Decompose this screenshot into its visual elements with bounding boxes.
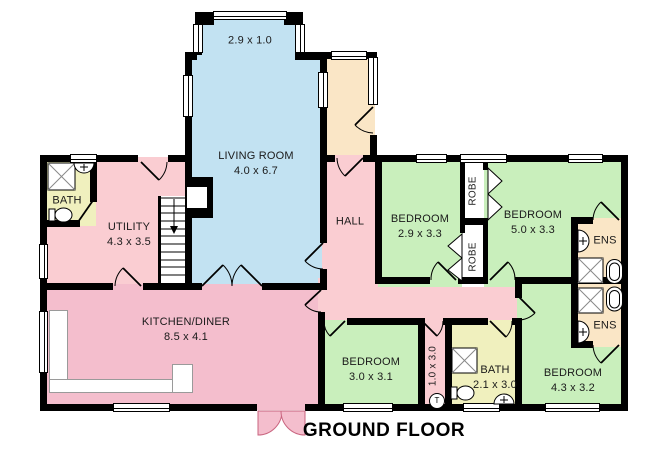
room-label-bedroom-3: BEDROOM3.0 x 3.1 <box>342 355 400 385</box>
fireplace <box>187 177 213 218</box>
tank-marker: T <box>429 393 445 409</box>
bay-window-dims: 2.9 x 1.0 <box>228 34 272 49</box>
shower-icon <box>48 163 603 373</box>
corridor-dims: 1.0 x 3.0 <box>426 346 441 386</box>
room-label-bath-1: BATH <box>52 194 81 209</box>
bathtub-icon <box>607 260 623 312</box>
french-doors <box>258 411 305 435</box>
floor-plan: 2.9 x 1.0 LIVING ROOM4.0 x 6.7 BATH UTIL… <box>0 0 668 472</box>
plan-linework <box>0 0 668 472</box>
stairs-down-arrow-icon <box>170 226 178 234</box>
shower-cross-lines <box>48 163 603 373</box>
room-label-ens-1: ENS <box>593 234 616 249</box>
room-label-bath-2: BATH2.1 x 3.0 <box>473 363 517 393</box>
room-label-utility: UTILITY4.3 x 3.5 <box>107 220 151 250</box>
page-title: GROUND FLOOR <box>303 420 465 442</box>
room-label-living-room: LIVING ROOM4.0 x 6.7 <box>218 149 294 179</box>
room-label-bedroom-1: BEDROOM2.9 x 3.3 <box>391 212 449 242</box>
stairs-treads <box>161 198 188 275</box>
room-label-ens-2: ENS <box>593 319 616 334</box>
room-label-bedroom-4: BEDROOM4.3 x 3.2 <box>544 366 602 396</box>
room-label-bedroom-2: BEDROOM5.0 x 3.3 <box>504 208 562 238</box>
room-label-hall: HALL <box>336 215 364 230</box>
room-label-robe-2: ROBE <box>466 242 481 271</box>
room-label-kitchen-diner: KITCHEN/DINER8.5 x 4.1 <box>142 315 230 345</box>
room-label-robe-1: ROBE <box>466 176 481 205</box>
